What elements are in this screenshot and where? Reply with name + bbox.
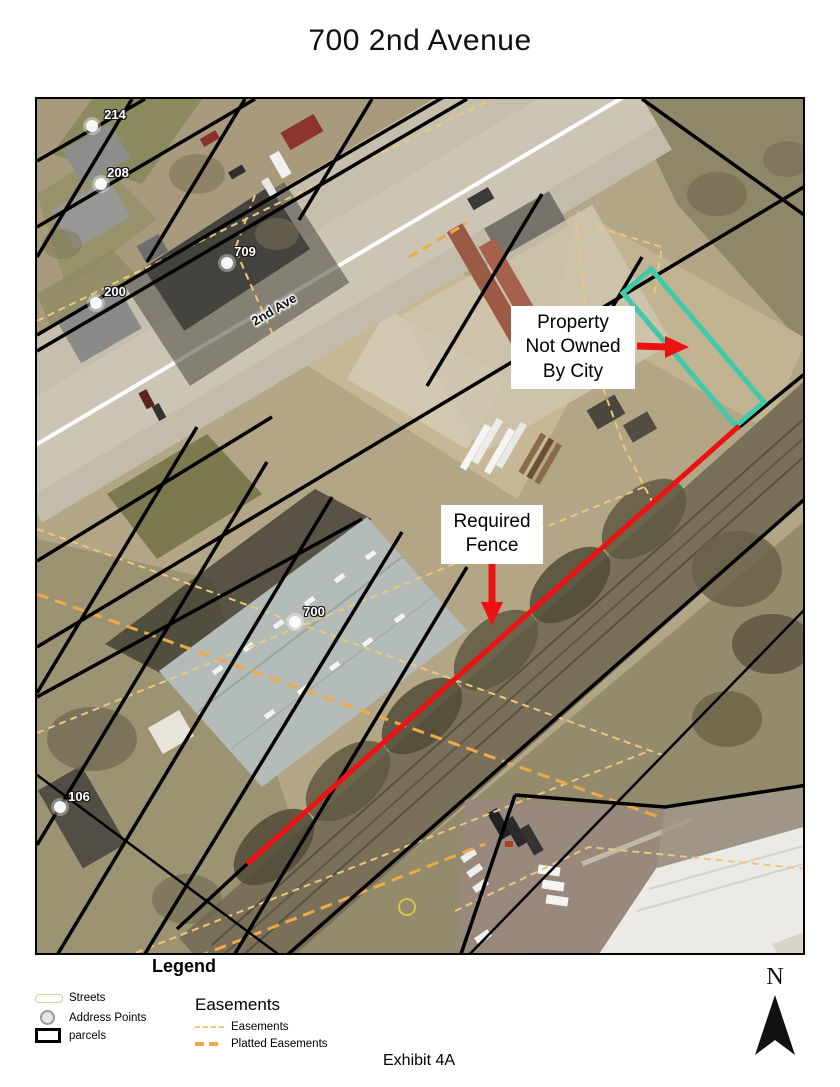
legend-item-easements: Easements bbox=[195, 1021, 289, 1033]
legend-item-label: Easements bbox=[231, 1021, 289, 1033]
legend-item-parcels: parcels bbox=[35, 1028, 106, 1043]
legend-title: Legend bbox=[152, 956, 216, 977]
legend-item-label: Streets bbox=[69, 992, 105, 1004]
property-arrow-shaft bbox=[637, 346, 667, 347]
address-label-208: 208 bbox=[96, 165, 140, 180]
legend-item-label: Platted Easements bbox=[231, 1038, 328, 1050]
exhibit-label: Exhibit 4A bbox=[383, 1052, 455, 1070]
north-arrow: N bbox=[742, 964, 808, 1066]
north-arrow-icon bbox=[747, 991, 803, 1061]
annotation-line: By City bbox=[517, 360, 629, 384]
north-label: N bbox=[742, 964, 808, 991]
platted-easement-dash-icon bbox=[195, 1042, 227, 1046]
streets-line-icon bbox=[35, 994, 65, 1003]
address-label-700: 700 bbox=[292, 604, 336, 619]
parcel-rectangle-icon bbox=[35, 1028, 65, 1043]
address-label-214: 214 bbox=[93, 107, 137, 122]
page-title: 700 2nd Avenue bbox=[0, 24, 840, 58]
legend-item-address-points: Address Points bbox=[35, 1010, 146, 1025]
annotation-line: Property bbox=[517, 311, 629, 335]
annotation-line: Not Owned bbox=[517, 335, 629, 359]
legend-item-label: Address Points bbox=[69, 1012, 146, 1024]
annotation-required-fence: Required Fence bbox=[441, 505, 543, 564]
annotation-property-not-owned: Property Not Owned By City bbox=[511, 306, 635, 389]
address-label-200: 200 bbox=[93, 284, 137, 299]
annotation-line: Required bbox=[447, 510, 537, 534]
legend-easements-title: Easements bbox=[195, 995, 280, 1015]
legend-item-platted-easements: Platted Easements bbox=[195, 1038, 328, 1050]
legend-item-streets: Streets bbox=[35, 992, 105, 1004]
annotation-line: Fence bbox=[447, 534, 537, 558]
address-label-709: 709 bbox=[223, 244, 267, 259]
aerial-photo-canvas bbox=[37, 99, 805, 955]
aerial-map: 214 208 709 200 700 106 2nd Ave Property… bbox=[35, 97, 805, 955]
legend-item-label: parcels bbox=[69, 1030, 106, 1042]
address-label-106: 106 bbox=[57, 789, 101, 804]
easement-dash-icon bbox=[195, 1026, 227, 1028]
address-point-circle-icon bbox=[35, 1010, 65, 1025]
